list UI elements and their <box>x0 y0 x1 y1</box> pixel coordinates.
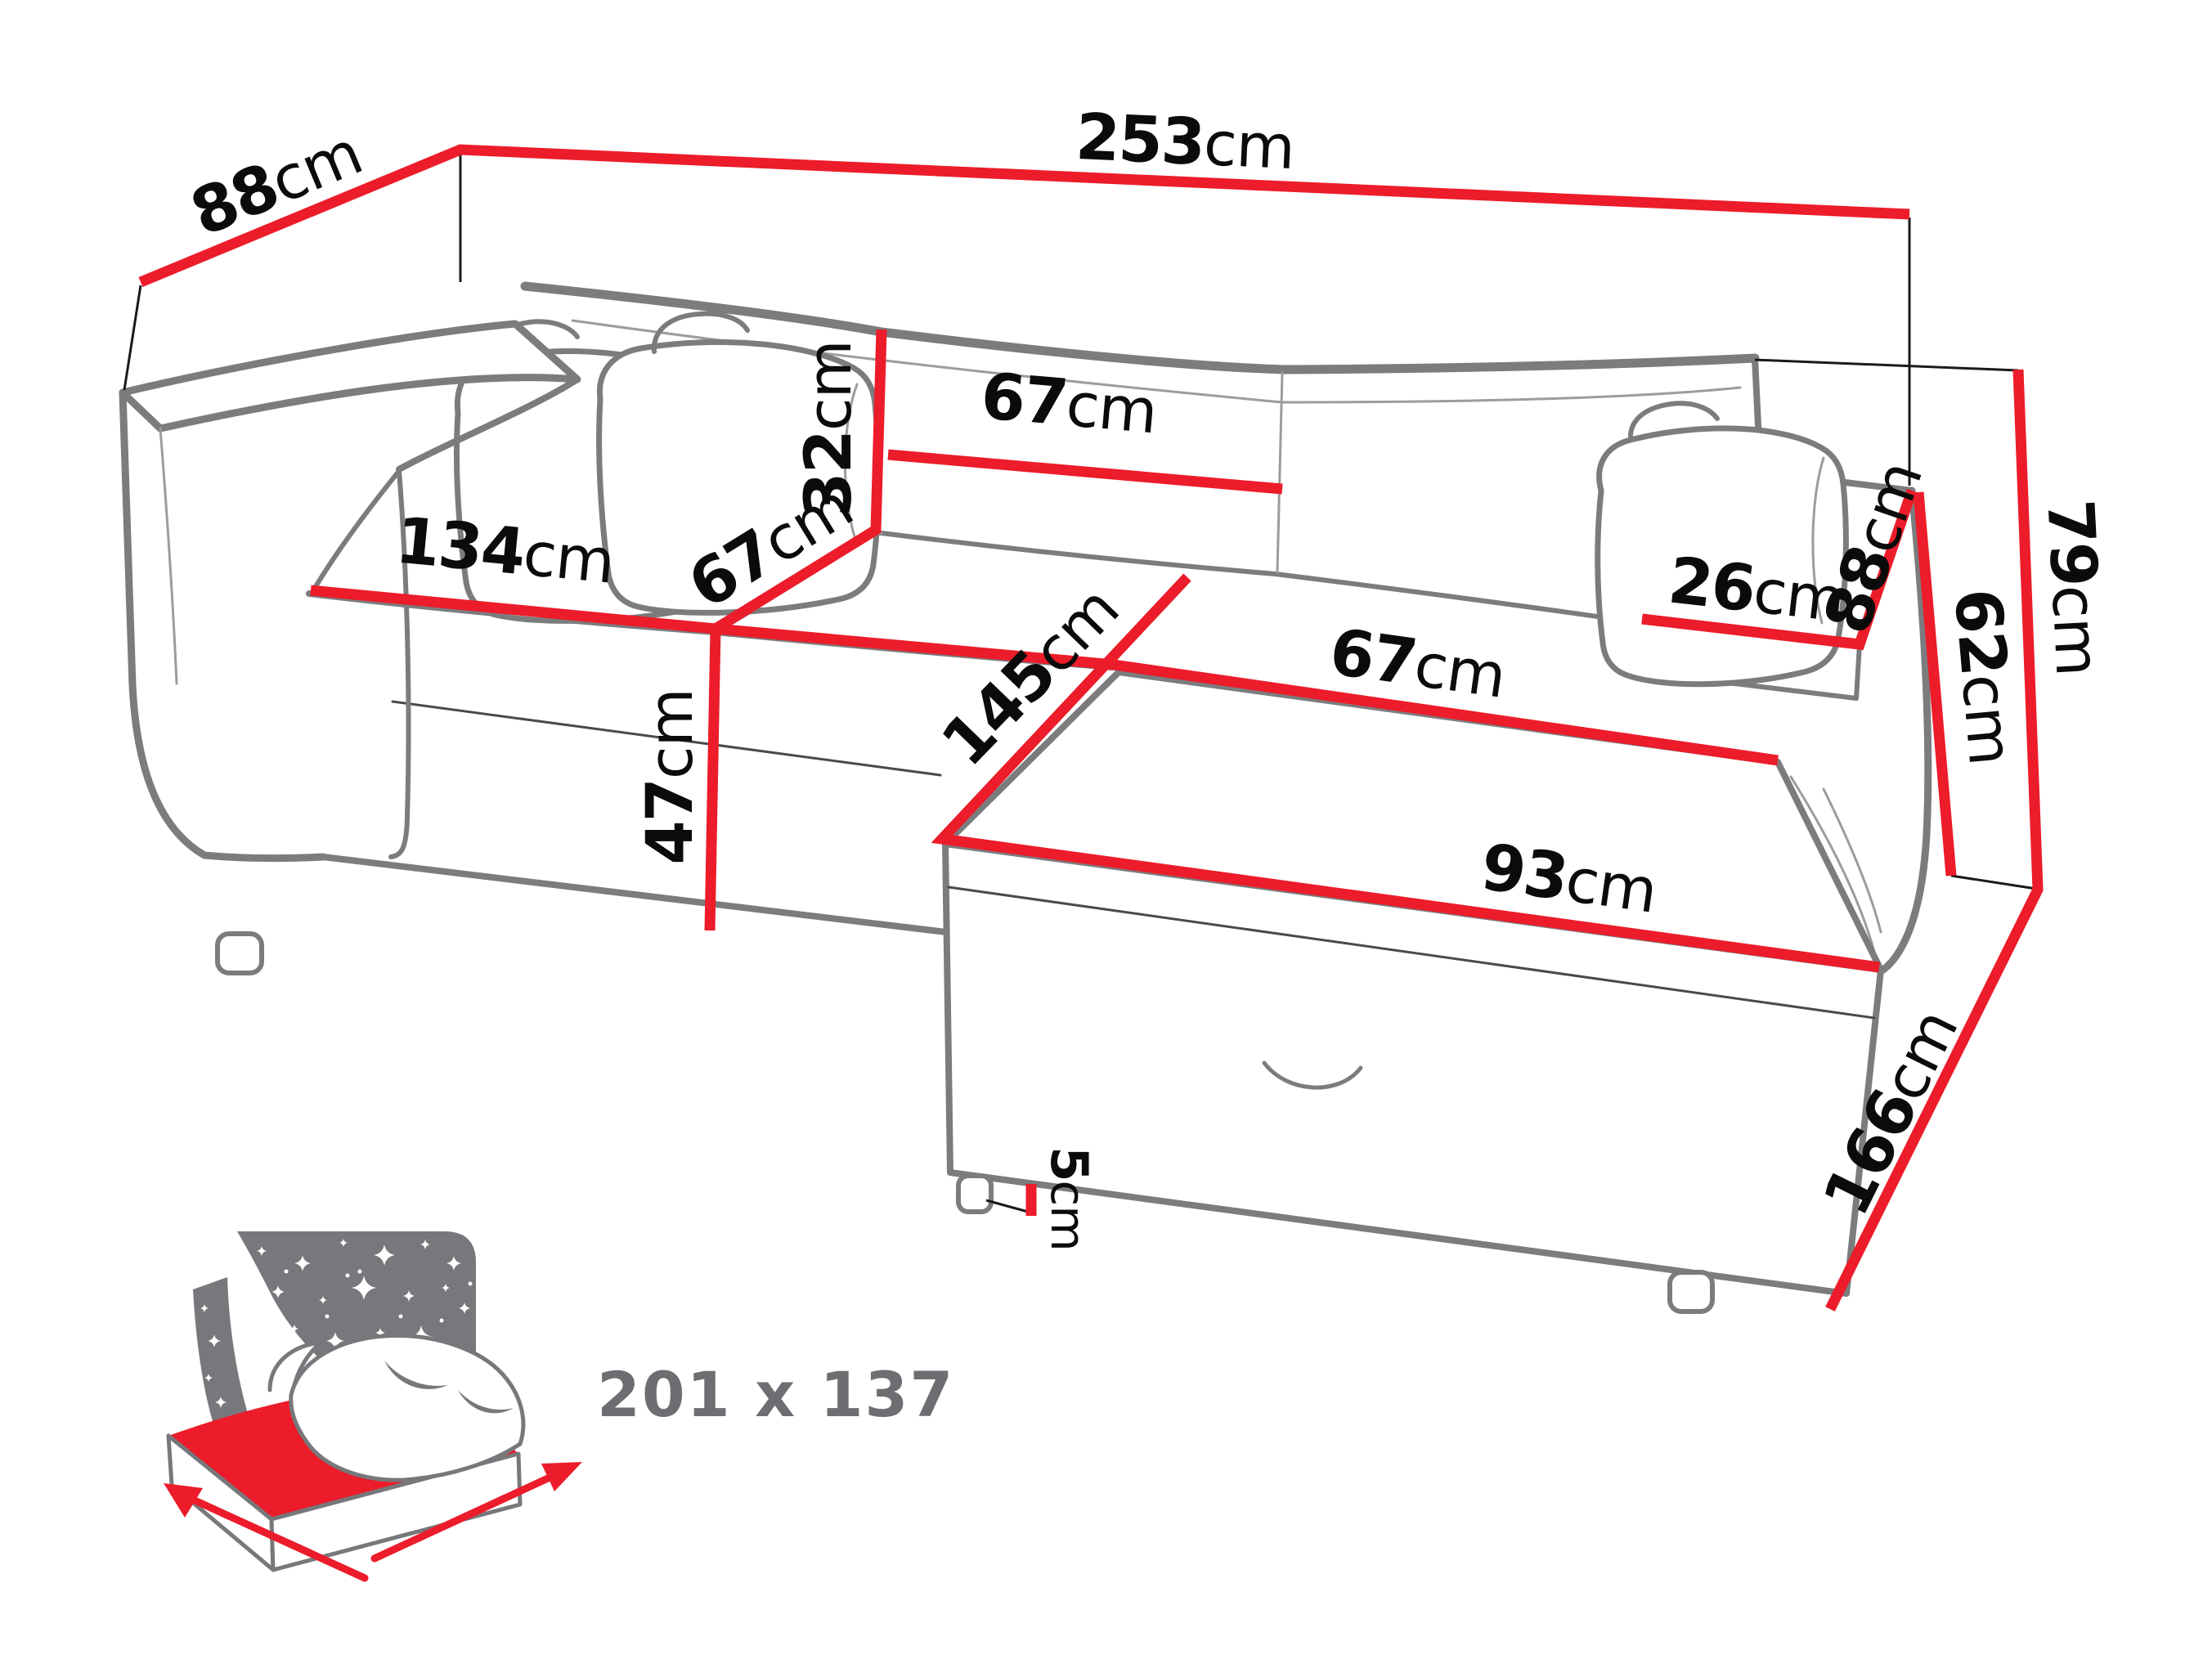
leg-height-label: 5cm <box>1039 1146 1099 1251</box>
backrest-cushion-width-label: 67cm <box>978 360 1160 448</box>
total-height-label: 79cm <box>2032 498 2115 678</box>
side-height-label: 62cm <box>1940 586 2028 768</box>
sofa-leg <box>218 934 262 973</box>
sofa-leg <box>1670 1272 1712 1312</box>
total-width-label: 253cm <box>1074 101 1295 184</box>
backrest-cushion-width-line <box>888 455 1282 489</box>
total-width-and-depth-line <box>141 150 1909 282</box>
sofa-sketch <box>123 286 1928 1312</box>
sofa-leg <box>958 1176 991 1212</box>
seat-height-line <box>710 629 716 930</box>
sleeping-area-size: 201 x 137 <box>597 1358 954 1431</box>
sofa-dimension-diagram: 253cm 88cm 67cm 32cm 134cm 67cm 47cm 67c… <box>0 0 2212 1659</box>
seat-height-label: 47cm <box>634 688 707 864</box>
sleeping-function-icon: 201 x 137 <box>0 0 954 1578</box>
duvet <box>291 1335 523 1480</box>
